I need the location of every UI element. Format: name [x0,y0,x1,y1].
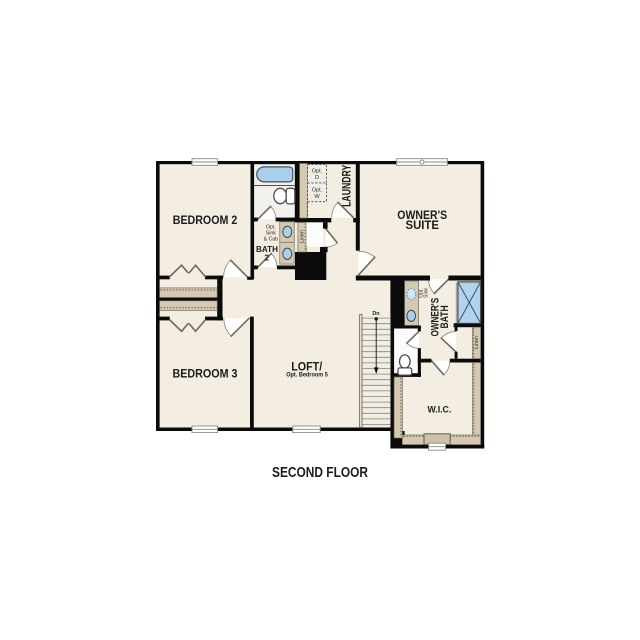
svg-text:W: W [314,194,320,200]
svg-text:Sink: Sink [266,231,276,237]
svg-text:Dn: Dn [372,311,379,317]
svg-text:& Cab: & Cab [264,237,279,243]
svg-text:D: D [315,175,319,181]
svg-text:SUITE: SUITE [406,220,440,232]
svg-text:Opt.: Opt. [266,224,276,230]
svg-text:2: 2 [264,253,269,263]
svg-text:W.I.C.: W.I.C. [428,404,452,414]
svg-text:Linen: Linen [300,230,306,243]
svg-text:Opt.: Opt. [312,169,323,175]
svg-text:BATH: BATH [439,305,451,328]
svg-text:Opt. Bedroom 5: Opt. Bedroom 5 [286,371,328,378]
svg-text:Opt.: Opt. [312,187,323,193]
svg-text:LAUNDRY: LAUNDRY [340,165,354,207]
svg-text:Linen: Linen [474,336,480,349]
svg-text:BEDROOM 3: BEDROOM 3 [173,369,238,381]
svg-text:BEDROOM 2: BEDROOM 2 [173,215,238,227]
svg-text:Sink: Sink [423,288,429,298]
svg-text:SECOND FLOOR: SECOND FLOOR [272,465,369,481]
